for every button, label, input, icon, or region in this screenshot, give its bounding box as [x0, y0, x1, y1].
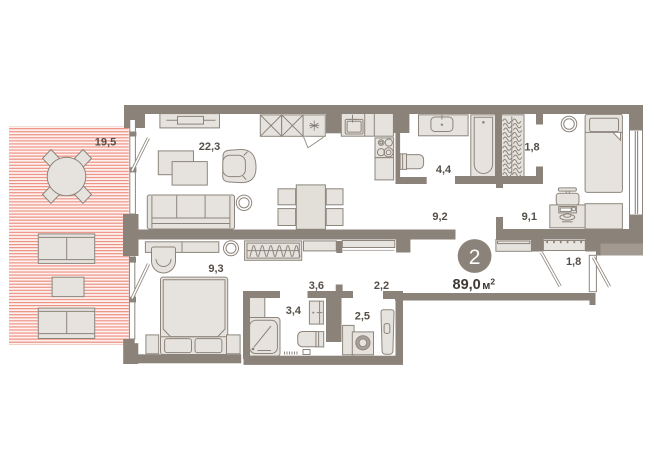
svg-text:2: 2 [469, 246, 481, 269]
svg-text:9,2: 9,2 [432, 211, 447, 223]
svg-text:1,8: 1,8 [566, 256, 581, 268]
svg-text:9,1: 9,1 [522, 211, 537, 223]
svg-text:1,8: 1,8 [524, 141, 539, 153]
svg-text:22,3: 22,3 [199, 141, 220, 153]
svg-text:2,2: 2,2 [374, 280, 389, 292]
svg-text:3,6: 3,6 [309, 280, 324, 292]
svg-text:19,5: 19,5 [95, 136, 116, 148]
svg-text:3,4: 3,4 [286, 305, 302, 317]
svg-text:9,3: 9,3 [208, 263, 223, 275]
svg-text:4,4: 4,4 [436, 164, 452, 176]
svg-text:2,5: 2,5 [355, 310, 370, 322]
